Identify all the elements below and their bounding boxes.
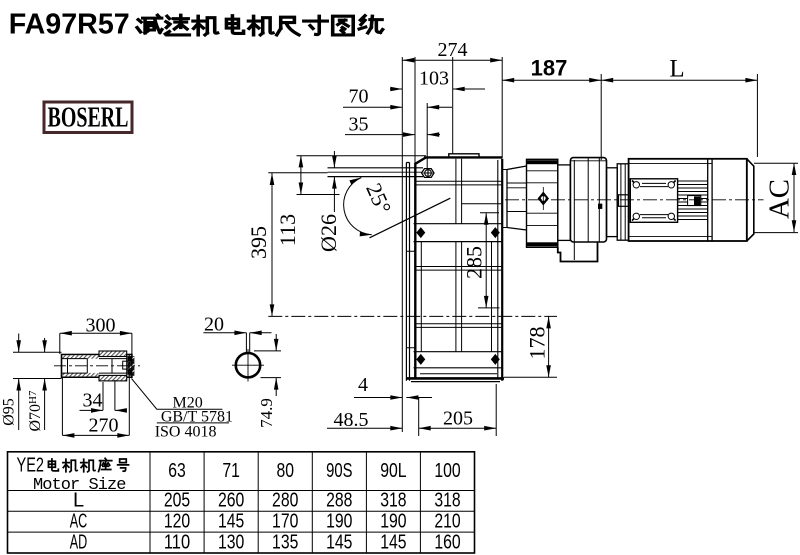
svg-text:L: L [73, 490, 84, 512]
svg-text:35: 35 [349, 114, 369, 136]
svg-text:170: 170 [272, 511, 298, 533]
svg-text:FA97R57: FA97R57 [9, 9, 130, 41]
svg-text:260: 260 [218, 490, 244, 512]
svg-text:90L: 90L [380, 460, 406, 482]
svg-text:130: 130 [218, 531, 244, 553]
svg-text:274: 274 [438, 39, 468, 61]
svg-text:300: 300 [86, 315, 116, 337]
svg-text:AD: AD [70, 531, 88, 553]
svg-text:135: 135 [272, 531, 298, 553]
svg-text:AC: AC [70, 511, 88, 533]
svg-text:210: 210 [434, 511, 460, 533]
svg-text:74.9: 74.9 [257, 398, 276, 428]
svg-text:395: 395 [246, 226, 271, 259]
svg-text:Ø95: Ø95 [1, 398, 18, 426]
svg-text:120: 120 [164, 511, 190, 533]
svg-text:71: 71 [222, 460, 240, 482]
svg-text:160: 160 [434, 531, 460, 553]
svg-text:110: 110 [164, 531, 190, 553]
svg-text:280: 280 [272, 490, 298, 512]
svg-text:285: 285 [462, 246, 487, 279]
svg-text:190: 190 [326, 511, 352, 533]
svg-text:BOSERL: BOSERL [48, 103, 129, 134]
svg-text:270: 270 [89, 415, 119, 437]
svg-text:YE2: YE2 [17, 455, 45, 477]
svg-text:113: 113 [275, 214, 300, 246]
svg-text:318: 318 [434, 490, 460, 512]
svg-text:100: 100 [434, 460, 460, 482]
svg-text:90S: 90S [326, 460, 352, 482]
svg-text:63: 63 [168, 460, 186, 482]
svg-text:AC: AC [765, 179, 796, 219]
svg-text:34: 34 [83, 390, 103, 412]
svg-text:Ø26: Ø26 [316, 214, 341, 252]
svg-text:145: 145 [326, 531, 352, 553]
svg-text:205: 205 [443, 408, 473, 430]
svg-text:70: 70 [349, 86, 369, 108]
svg-text:288: 288 [326, 490, 352, 512]
svg-text:80: 80 [276, 460, 294, 482]
svg-text:4: 4 [358, 374, 368, 396]
svg-text:145: 145 [380, 531, 406, 553]
svg-text:20: 20 [204, 314, 224, 336]
svg-text:187: 187 [531, 56, 568, 81]
svg-text:103: 103 [419, 68, 449, 90]
svg-text:190: 190 [380, 511, 406, 533]
svg-text:48.5: 48.5 [334, 409, 369, 431]
svg-text:318: 318 [380, 490, 406, 512]
svg-text:ISO 4018: ISO 4018 [155, 423, 217, 440]
svg-text:L: L [669, 56, 684, 83]
svg-text:205: 205 [164, 490, 190, 512]
svg-text:178: 178 [525, 327, 550, 360]
svg-text:145: 145 [218, 511, 244, 533]
